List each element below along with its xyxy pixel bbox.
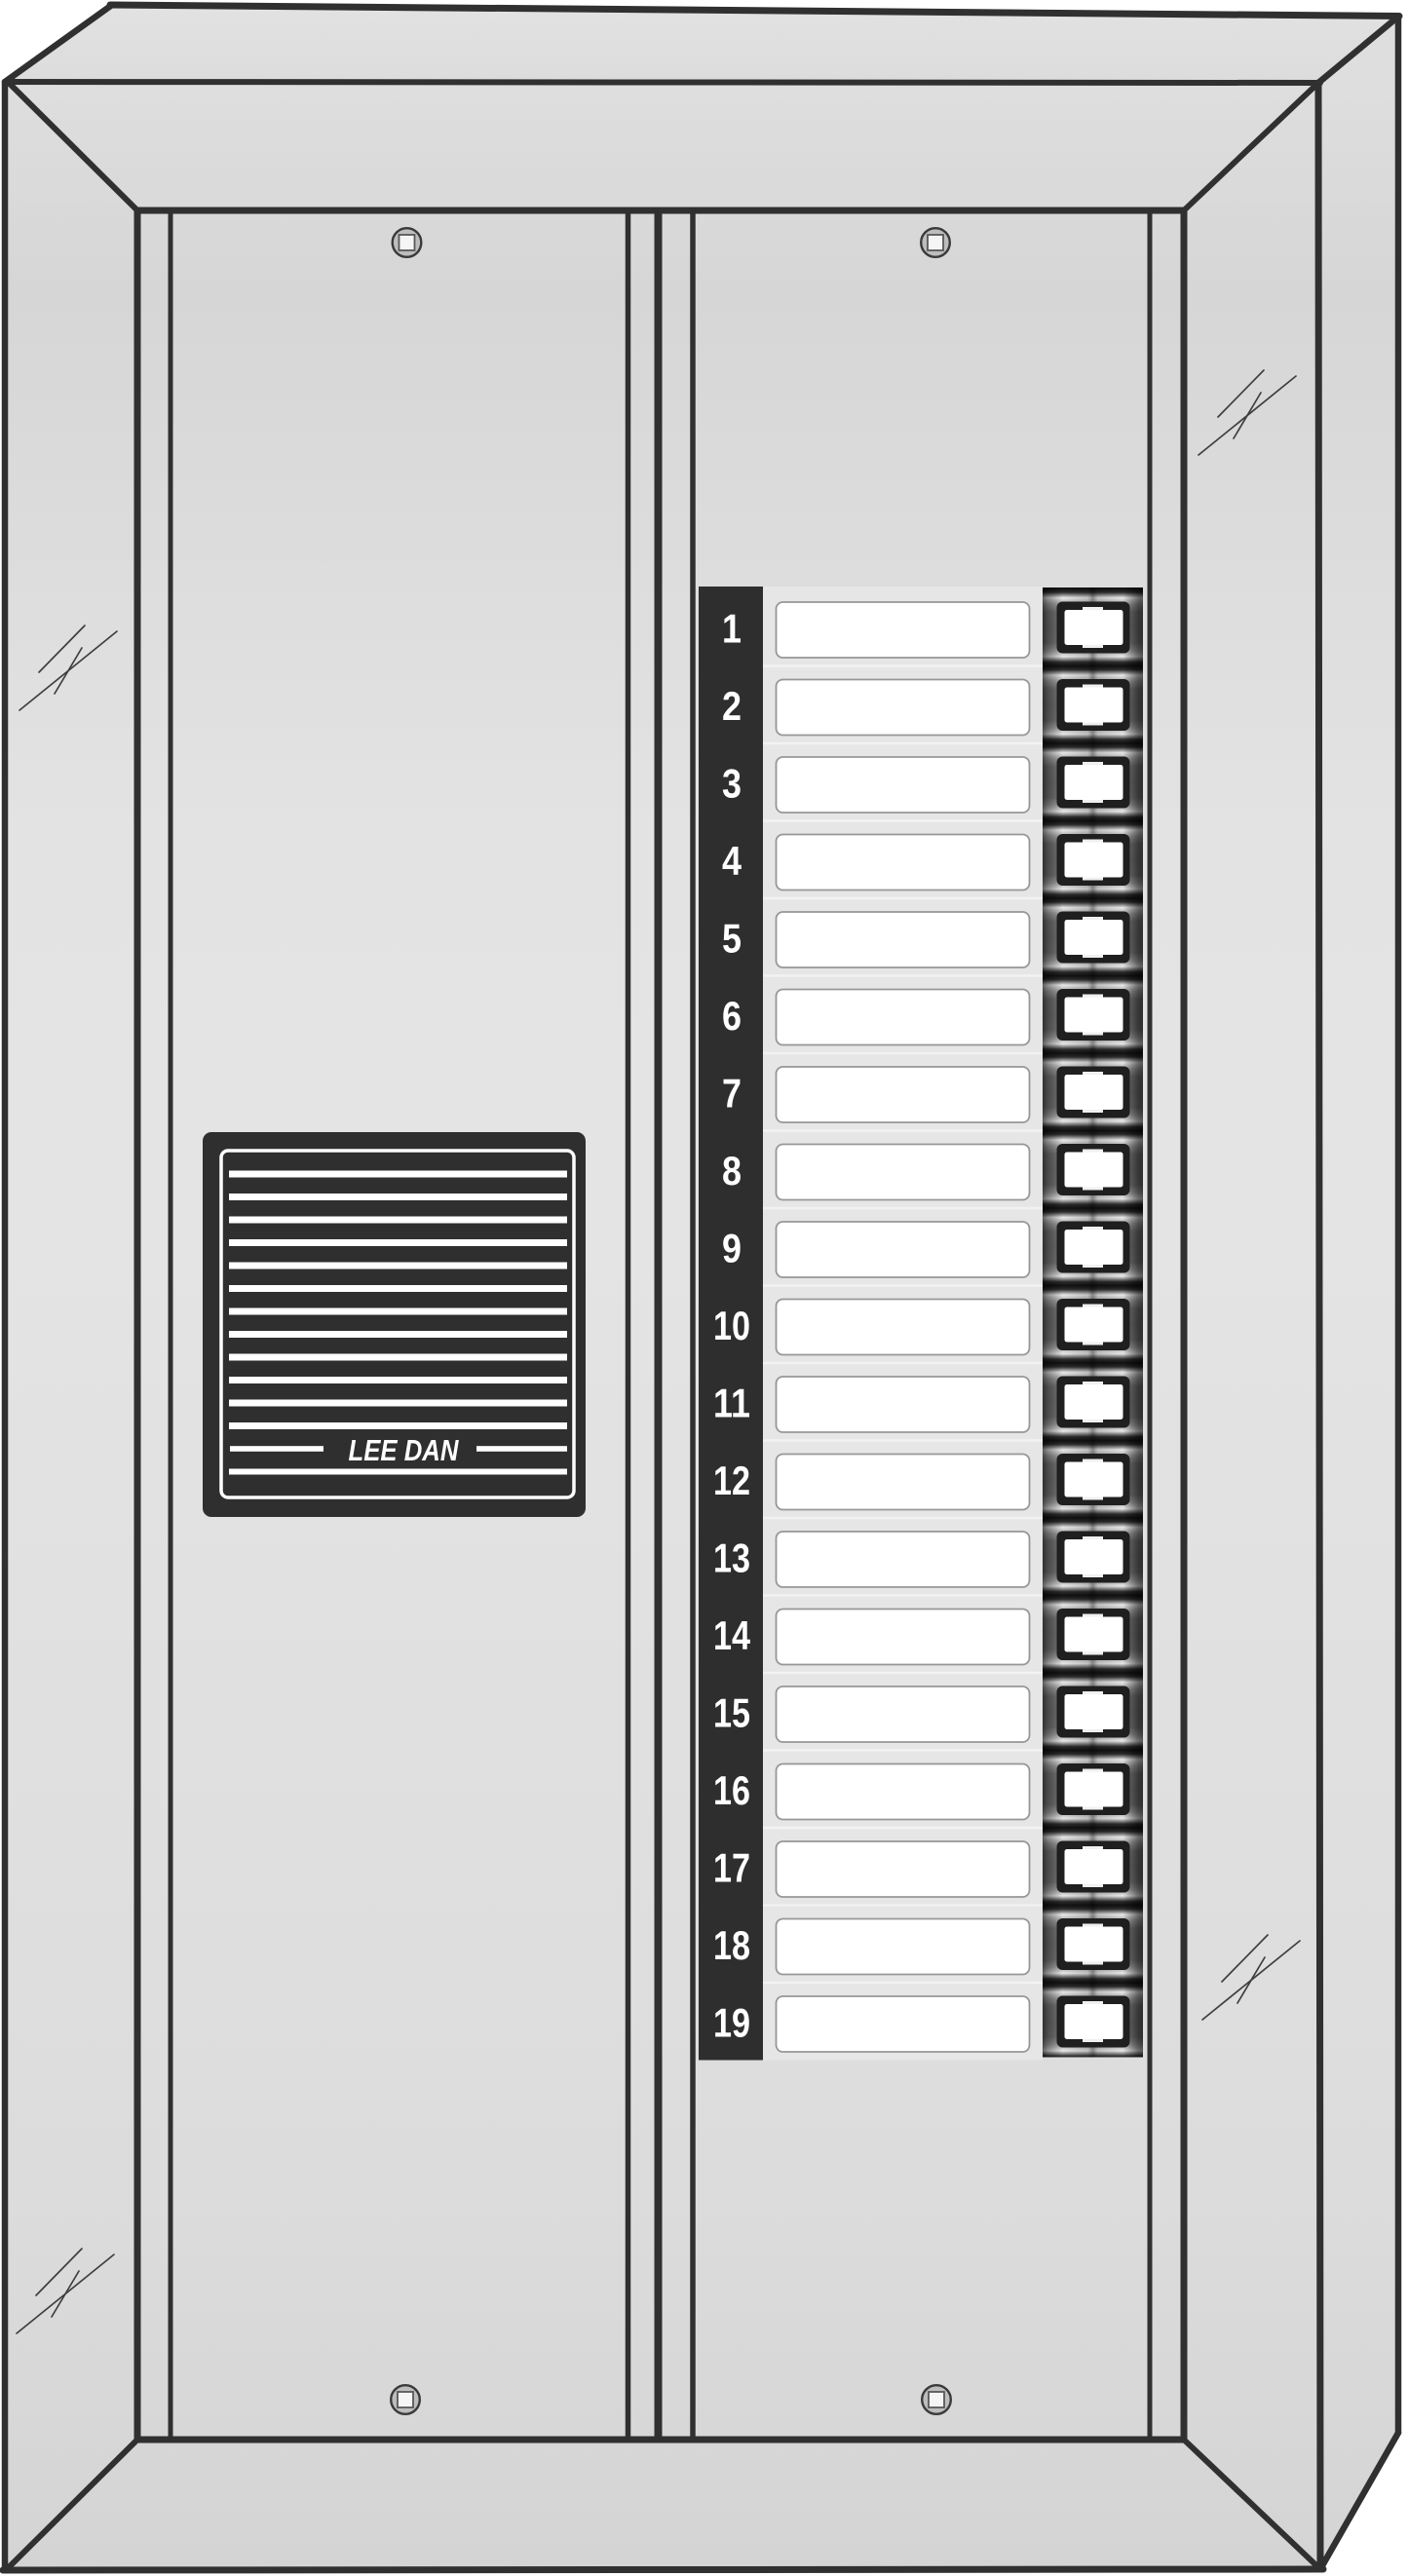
svg-text:19: 19 (713, 1999, 750, 2045)
svg-text:13: 13 (713, 1534, 750, 1580)
svg-text:7: 7 (722, 1070, 742, 1116)
svg-text:17: 17 (713, 1844, 750, 1890)
svg-text:LEE DAN: LEE DAN (349, 1433, 459, 1467)
svg-text:18: 18 (713, 1922, 750, 1968)
svg-text:8: 8 (722, 1148, 742, 1193)
svg-text:9: 9 (722, 1225, 742, 1270)
svg-text:16: 16 (713, 1767, 750, 1813)
svg-text:4: 4 (722, 838, 742, 884)
svg-text:12: 12 (713, 1458, 750, 1503)
svg-text:3: 3 (722, 760, 742, 806)
svg-text:5: 5 (722, 915, 742, 961)
svg-text:1: 1 (722, 605, 742, 651)
svg-text:15: 15 (713, 1689, 750, 1735)
svg-text:6: 6 (722, 993, 742, 1039)
svg-text:11: 11 (713, 1380, 750, 1425)
svg-text:2: 2 (722, 683, 742, 729)
svg-text:14: 14 (713, 1612, 751, 1658)
svg-text:10: 10 (713, 1303, 750, 1348)
